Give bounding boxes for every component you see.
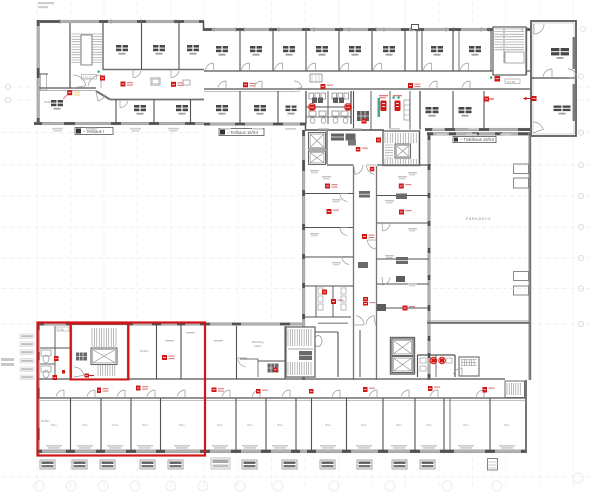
svg-text:36.86m: 36.86m [41, 419, 50, 423]
svg-text:Büro: Büro [396, 424, 402, 427]
svg-text:Büro: Büro [179, 424, 185, 427]
svg-text:Büro: Büro [277, 424, 283, 427]
svg-text:Büro: Büro [361, 424, 367, 427]
svg-text:Büro: Büro [325, 424, 331, 427]
svg-text:36.65m: 36.65m [44, 100, 53, 104]
svg-text:Küche: Küche [254, 344, 262, 348]
svg-text:Büro: Büro [82, 424, 88, 427]
svg-text:Büro: Büro [247, 424, 253, 427]
svg-text:30.05m: 30.05m [140, 349, 149, 353]
svg-text:– Teilhaus 16/XII: – Teilhaus 16/XII [227, 130, 258, 135]
svg-text:Büro: Büro [217, 424, 223, 427]
svg-text:P A R K D E C K: P A R K D E C K [466, 217, 492, 221]
svg-text:Büro: Büro [51, 424, 57, 427]
svg-text:Büro: Büro [426, 424, 432, 427]
svg-text:Büro/King: Büro/King [252, 340, 264, 344]
svg-text:170 17: 170 17 [83, 75, 92, 79]
svg-text:170a: 170a [58, 327, 64, 331]
svg-text:Büro: Büro [504, 424, 510, 427]
svg-text:Archiv: Archiv [112, 424, 120, 427]
svg-text:Büro: Büro [142, 424, 148, 427]
svg-text:170 05: 170 05 [507, 80, 516, 84]
svg-text:Büro: Büro [463, 424, 469, 427]
svg-text:– Trakthaus 16/XII: – Trakthaus 16/XII [460, 137, 494, 142]
